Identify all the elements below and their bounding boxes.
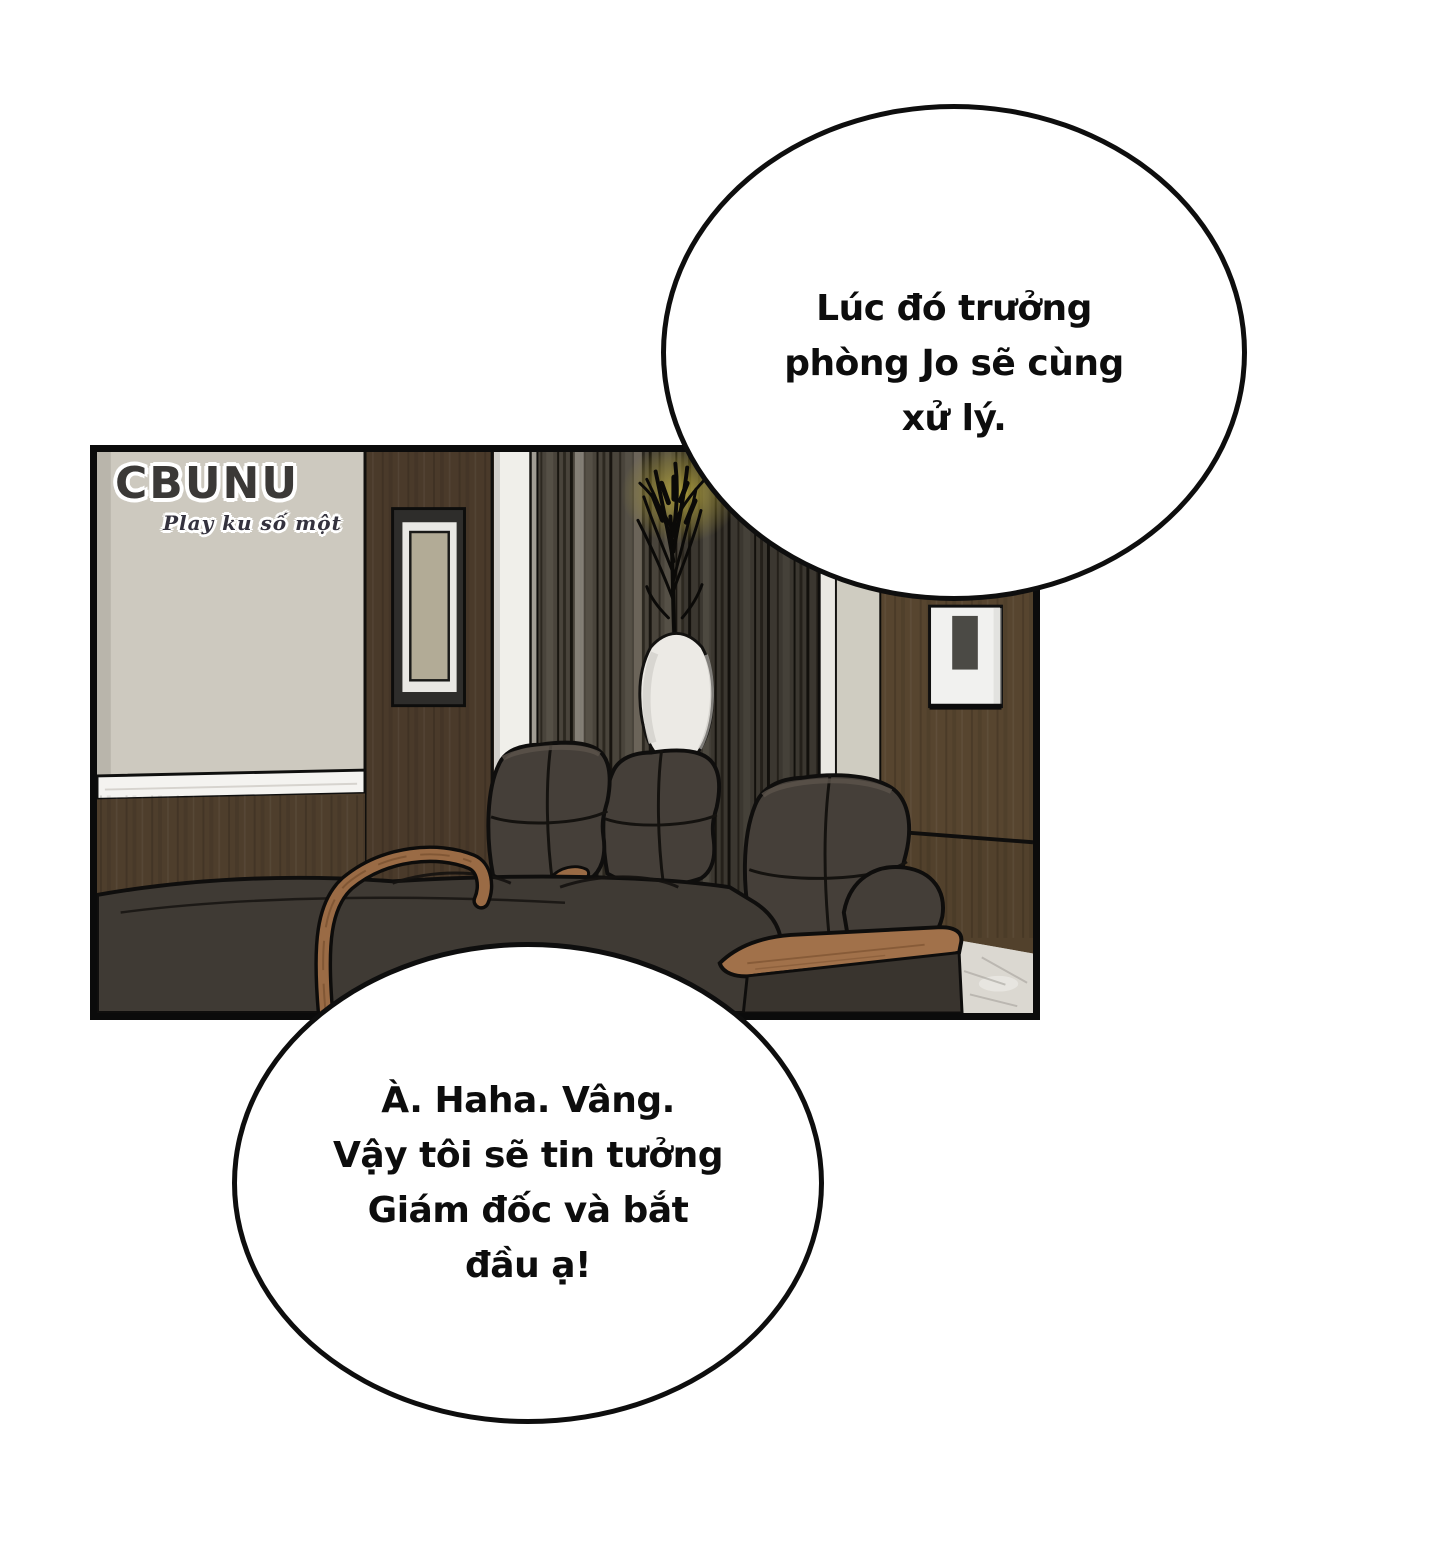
- recliner-left: [488, 743, 609, 887]
- speech-line: Giám đốc và bắt: [333, 1183, 723, 1238]
- speech-line: xử lý.: [784, 391, 1123, 446]
- floor-vase: [640, 633, 713, 759]
- speech-text-bottom: À. Haha. Vâng. Vậy tôi sẽ tin tưởng Giám…: [333, 1073, 723, 1293]
- speech-text-top: Lúc đó trưởng phòng Jo sẽ cùng xử lý.: [784, 281, 1123, 446]
- speech-line: À. Haha. Vâng.: [333, 1073, 723, 1128]
- comic-page: CBUNU Play ku số một Lúc đó trưởng phòng…: [0, 0, 1440, 1558]
- speech-bubble-bottom: À. Haha. Vâng. Vậy tôi sẽ tin tưởng Giám…: [232, 942, 824, 1424]
- speech-line: đầu ạ!: [333, 1238, 723, 1293]
- speech-bubble-top: Lúc đó trưởng phòng Jo sẽ cùng xử lý.: [661, 104, 1247, 601]
- picture-frame: [930, 606, 1002, 706]
- speech-line: phòng Jo sẽ cùng: [784, 336, 1123, 391]
- mirror-frame: [393, 509, 465, 706]
- speech-line: Vậy tôi sẽ tin tưởng: [333, 1128, 723, 1183]
- speech-line: Lúc đó trưởng: [784, 281, 1123, 336]
- recliner-middle: [603, 750, 719, 885]
